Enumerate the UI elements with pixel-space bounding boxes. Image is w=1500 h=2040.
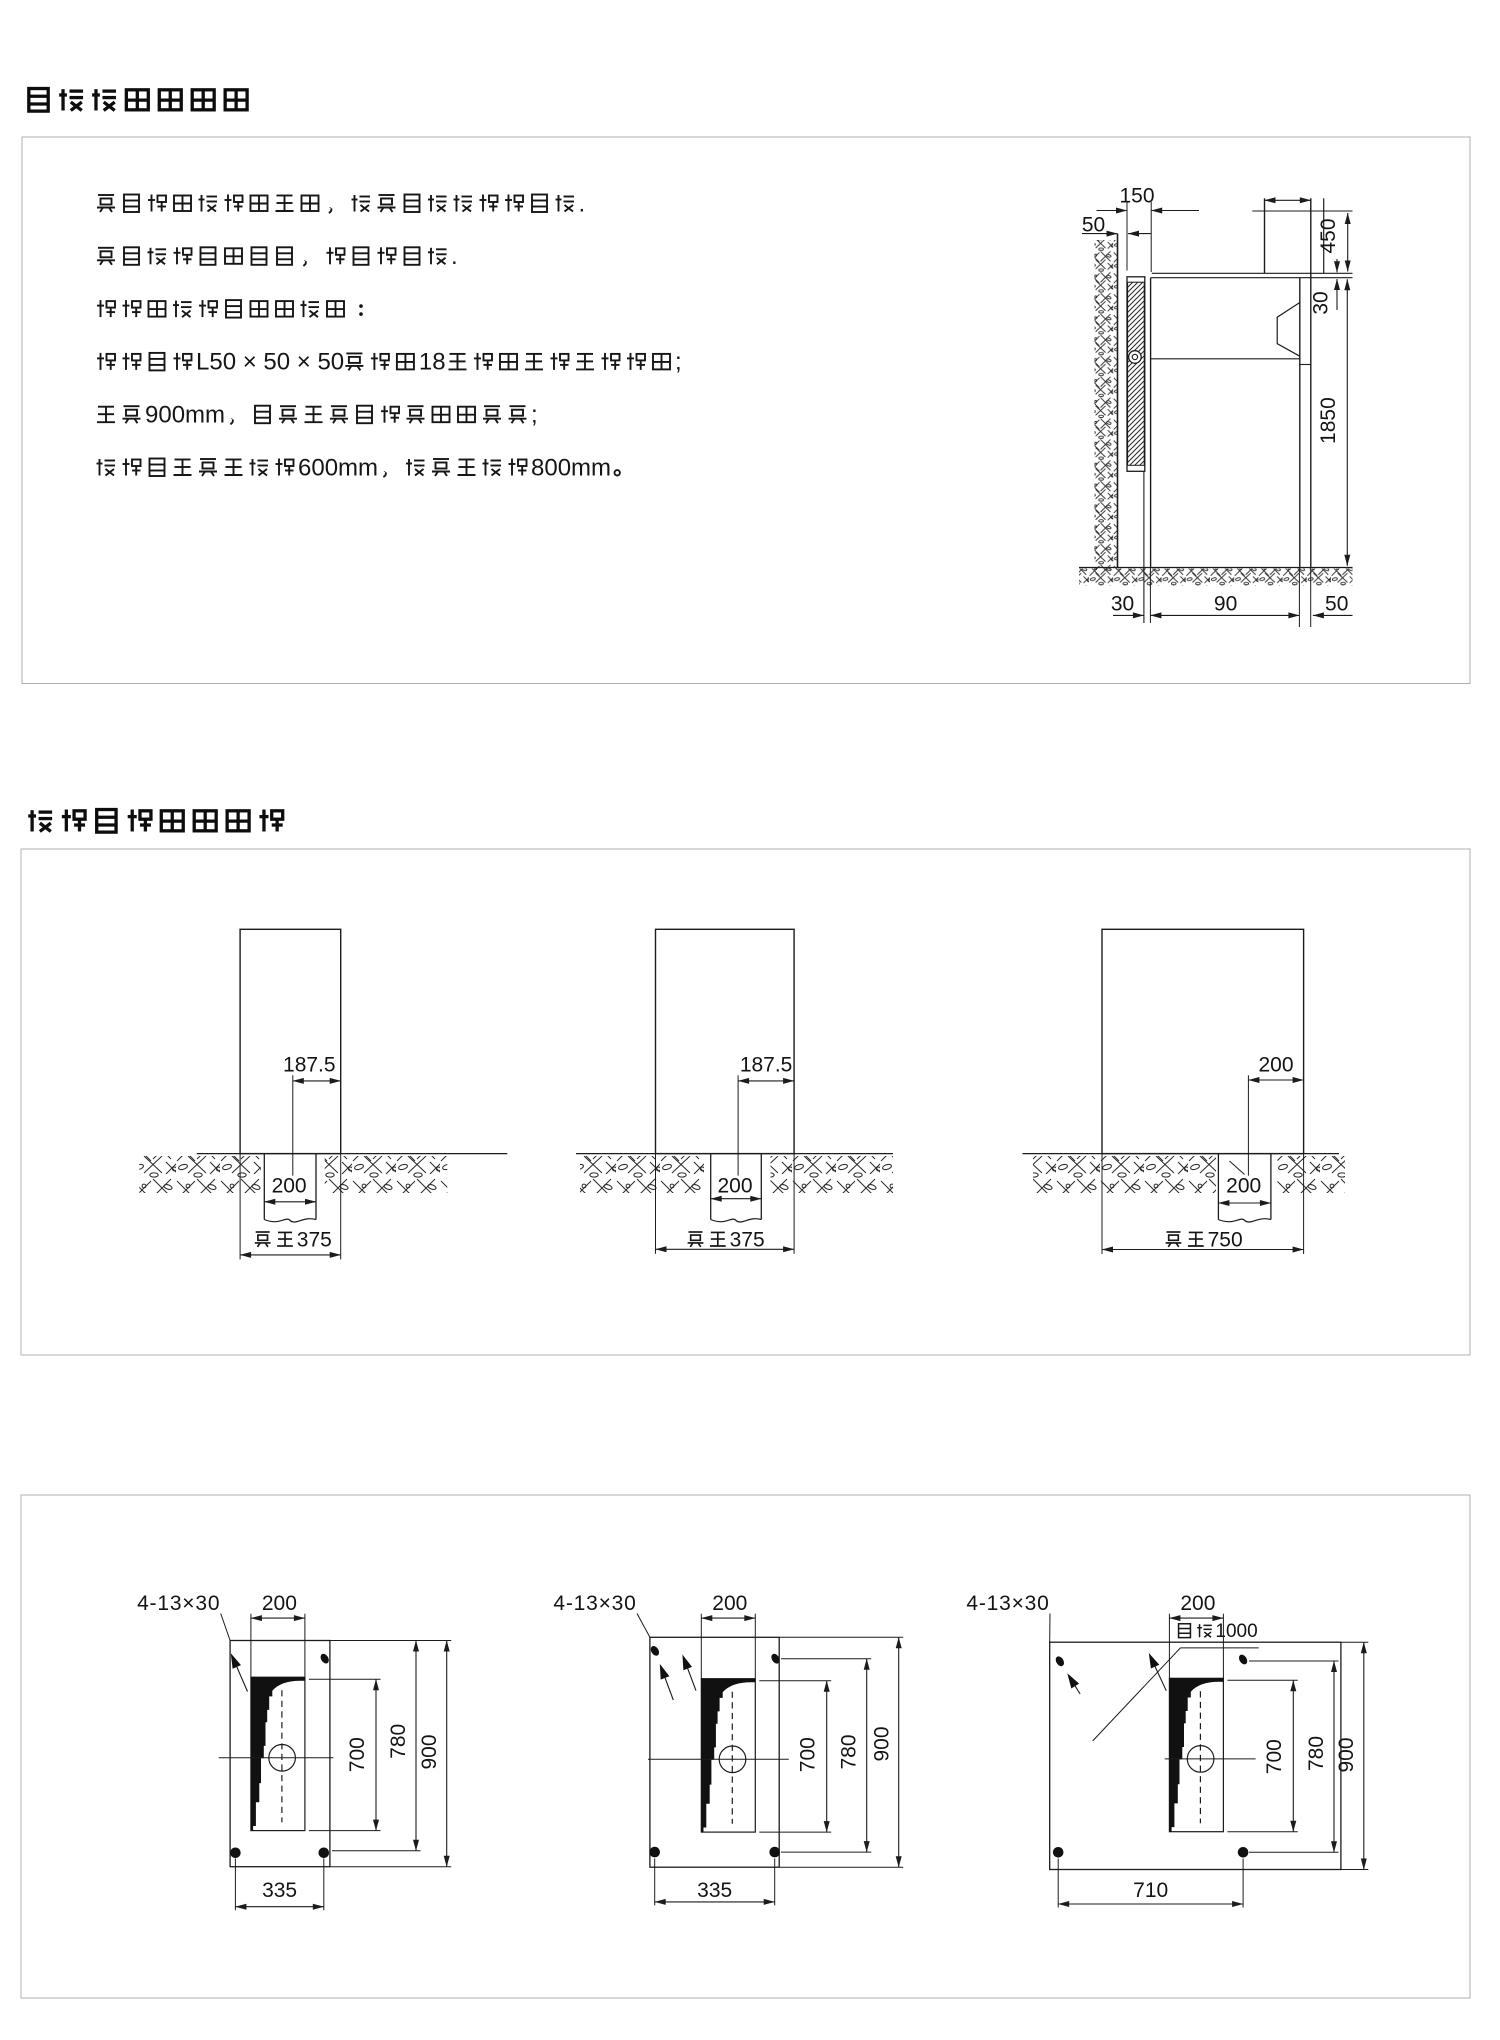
svg-text:375: 375	[297, 1229, 332, 1252]
svg-text:375: 375	[730, 1229, 765, 1252]
svg-text:700: 700	[1263, 1739, 1286, 1774]
svg-text:700: 700	[346, 1737, 369, 1772]
svg-text:335: 335	[262, 1879, 297, 1902]
svg-text:187.5: 187.5	[283, 1054, 336, 1077]
svg-text:200: 200	[262, 1592, 297, 1615]
svg-text:335: 335	[697, 1879, 732, 1902]
svg-text:.: .	[451, 243, 458, 270]
svg-text:30: 30	[1111, 593, 1134, 616]
svg-text:780: 780	[1305, 1736, 1328, 1771]
svg-text:;: ;	[675, 349, 682, 376]
svg-text:4-13×30: 4-13×30	[137, 1592, 220, 1615]
svg-text:200: 200	[272, 1174, 307, 1197]
svg-text:200: 200	[1226, 1174, 1261, 1197]
svg-text:710: 710	[1133, 1879, 1168, 1902]
svg-text:;: ;	[531, 402, 538, 429]
svg-text:700: 700	[797, 1737, 820, 1772]
svg-text:900: 900	[1335, 1737, 1358, 1772]
svg-text:200: 200	[1258, 1054, 1293, 1077]
svg-text:750: 750	[1208, 1229, 1243, 1252]
svg-text:450: 450	[1317, 218, 1340, 253]
svg-text:L50 × 50 × 50: L50 × 50 × 50	[196, 349, 344, 376]
svg-text:.: .	[579, 190, 586, 217]
svg-text:50: 50	[1325, 593, 1348, 616]
svg-text:600mm: 600mm	[298, 454, 378, 481]
svg-text:1000: 1000	[1215, 1621, 1257, 1642]
svg-text:1850: 1850	[1317, 397, 1340, 444]
svg-text:200: 200	[712, 1592, 747, 1615]
svg-text:4-13×30: 4-13×30	[553, 1592, 636, 1615]
svg-text:200: 200	[717, 1174, 752, 1197]
svg-text:18: 18	[419, 349, 446, 376]
svg-text:900: 900	[871, 1726, 894, 1761]
svg-text:780: 780	[838, 1734, 861, 1769]
svg-text:900mm: 900mm	[145, 402, 225, 429]
svg-text:90: 90	[1214, 593, 1237, 616]
svg-text:4-13×30: 4-13×30	[966, 1592, 1049, 1615]
svg-text:187.5: 187.5	[740, 1054, 793, 1077]
svg-text:900: 900	[418, 1734, 441, 1769]
svg-text:200: 200	[1180, 1592, 1215, 1615]
svg-text:150: 150	[1119, 185, 1154, 208]
svg-text:30: 30	[1310, 291, 1333, 314]
svg-text:800mm: 800mm	[531, 454, 611, 481]
svg-text:780: 780	[387, 1724, 410, 1759]
